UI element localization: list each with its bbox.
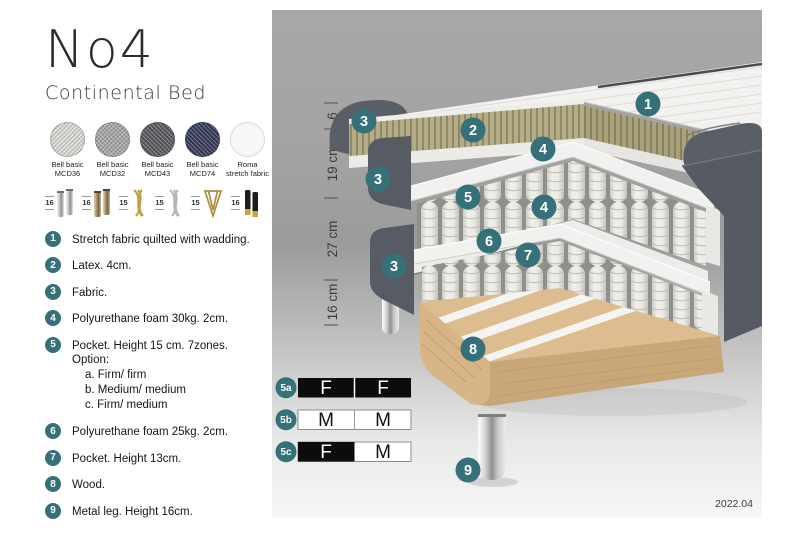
callout-2: 2 [461,118,486,143]
feature-option: b. Medium/ medium [85,383,267,398]
callout-3-top: 3 [352,109,377,134]
info-panel: No4 Continental Bed Bell basic MCD36 Bel… [0,0,272,533]
fabric-swatch: Bell basic MCD43 [135,122,180,179]
fabric-swatch-label: Roma stretch fabric [226,160,270,179]
feature-options: a. Firm/ firm b. Medium/ medium c. Firm/… [85,368,267,413]
leg-height-label: 15 [155,199,163,207]
leg-cylinder-chrome-icon [56,188,75,218]
svg-text:5: 5 [464,190,472,206]
leg-option: 15 [119,188,148,218]
leg-hairpin-icon [202,188,224,218]
feature-number-badge: 2 [45,257,61,273]
feature-text: Pocket. Height 15 cm. 7zones. Option: [72,340,228,366]
feature-text: Metal leg. Height 16cm. [72,503,267,519]
leg-option: 16 [45,188,75,218]
svg-text:2: 2 [469,123,477,139]
front-leg [478,414,506,480]
svg-text:3: 3 [390,259,398,275]
callout-5: 5 [456,185,481,210]
fabric-swatch-label: Bell basic MCD36 [46,160,90,179]
feature-number-badge: 9 [45,503,61,519]
leg-height-label: 16 [82,199,90,207]
svg-text:9: 9 [464,463,472,479]
feature-text: Wood. [72,476,267,492]
leg-black-gold-icon [242,188,260,218]
feature-item: 2 Latex. 4cm. [45,257,272,273]
leg-option: 15 [191,188,224,218]
feature-list: 1 Stretch fabric quilted with wadding. 2… [45,231,272,519]
svg-text:1: 1 [644,97,652,113]
bed-cutaway-illustration: 6 19 cm 27 cm 16 cm [272,10,762,518]
svg-text:8: 8 [469,342,477,358]
fabric-swatch-icon [140,122,175,157]
measure-label-16cm: 16 cm [325,284,340,321]
feature-number-badge: 4 [45,310,61,326]
firmness-row-5c: 5c F M [276,441,412,463]
leg-height-label: 16 [231,199,239,207]
leg-height-label: 15 [119,199,127,207]
feature-item: 3 Fabric. [45,284,272,300]
fabric-swatch-icon [50,122,85,157]
fabric-swatch: Bell basic MCD74 [180,122,225,179]
feature-item: 5 Pocket. Height 15 cm. 7zones. Option: … [45,337,272,413]
feature-text: Polyurethane foam 30kg. 2cm. [72,310,267,326]
feature-option: a. Firm/ firm [85,368,267,383]
feature-text: Stretch fabric quilted with wadding. [72,231,267,247]
feature-item: 9 Metal leg. Height 16cm. [45,503,272,519]
leg-cylinder-bronze-icon [93,188,112,218]
fabric-swatch-label: Bell basic MCD32 [91,160,135,179]
svg-text:3: 3 [374,172,382,188]
svg-text:5c: 5c [280,447,292,458]
fabric-swatch-icon [95,122,130,157]
fabric-swatch-label: Bell basic MCD74 [181,160,225,179]
firmness-row-5b: 5b M M [276,409,412,431]
version-label: 2022.04 [715,498,753,510]
product-title: No4 [45,24,272,76]
svg-text:4: 4 [539,142,547,158]
svg-text:3: 3 [360,114,368,130]
product-sheet: No4 Continental Bed Bell basic MCD36 Bel… [0,0,800,533]
callout-4-upper: 4 [531,137,556,162]
svg-text:6: 6 [485,234,493,250]
svg-text:5b: 5b [280,415,292,426]
fabric-swatch: Bell basic MCD36 [45,122,90,179]
feature-text: Latex. 4cm. [72,257,267,273]
leg-option: 16 [231,188,260,218]
callout-7: 7 [516,243,541,268]
firmness-cell-right: F [377,378,389,399]
fabric-swatch-icon [230,122,265,157]
feature-item: 8 Wood. [45,476,272,492]
feature-text: Pocket. Height 13cm. [72,450,267,466]
feature-text: Fabric. [72,284,267,300]
fabric-swatch-icon [185,122,220,157]
firmness-cell-left: F [320,378,332,399]
feature-number-badge: 5 [45,337,61,353]
feature-number-badge: 7 [45,450,61,466]
callout-3-middle: 3 [366,167,391,192]
feature-item: 6 Polyurethane foam 25kg. 2cm. [45,423,272,439]
feature-number-badge: 6 [45,423,61,439]
fabric-swatch: Roma stretch fabric [225,122,270,179]
product-subtitle: Continental Bed [45,82,272,104]
leg-option: 15 [155,188,184,218]
fabric-swatch-label: Bell basic MCD43 [136,160,180,179]
svg-text:7: 7 [524,248,532,264]
diagram-panel: 6 19 cm 27 cm 16 cm [272,10,762,518]
feature-text: Polyurethane foam 25kg. 2cm. [72,423,267,439]
measure-label-27cm: 27 cm [325,221,340,258]
callout-1: 1 [636,92,661,117]
feature-item: 4 Polyurethane foam 30kg. 2cm. [45,310,272,326]
callout-9: 9 [456,458,481,483]
feature-number-badge: 8 [45,476,61,492]
callout-4-lower: 4 [532,195,557,220]
svg-text:4: 4 [540,200,548,216]
svg-text:5a: 5a [280,383,292,394]
leg-option: 16 [82,188,112,218]
firmness-row-5a: 5a F F [276,377,412,399]
firmness-cell-right: M [375,410,391,431]
leg-twisted-silver-icon [166,188,184,218]
fabric-swatches: Bell basic MCD36 Bell basic MCD32 Bell b… [45,122,273,179]
firmness-options: 5a F F 5b M M 5c [276,377,412,463]
front-leg-top [478,414,506,417]
feature-number-badge: 3 [45,284,61,300]
firmness-cell-left: M [318,410,334,431]
fabric-swatch: Bell basic MCD32 [90,122,135,179]
firmness-cell-right: M [375,442,391,463]
callout-8: 8 [461,337,486,362]
callout-3-bottom: 3 [382,254,407,279]
leg-twisted-gold-icon [130,188,148,218]
firmness-cell-left: F [320,442,332,463]
feature-number-badge: 1 [45,231,61,247]
leg-height-label: 16 [45,199,53,207]
feature-item: 1 Stretch fabric quilted with wadding. [45,231,272,247]
leg-height-label: 15 [191,199,199,207]
feature-option: c. Firm/ medium [85,398,267,413]
feature-item: 7 Pocket. Height 13cm. [45,450,272,466]
leg-options: 16 16 15 [45,188,245,218]
callout-6: 6 [477,229,502,254]
